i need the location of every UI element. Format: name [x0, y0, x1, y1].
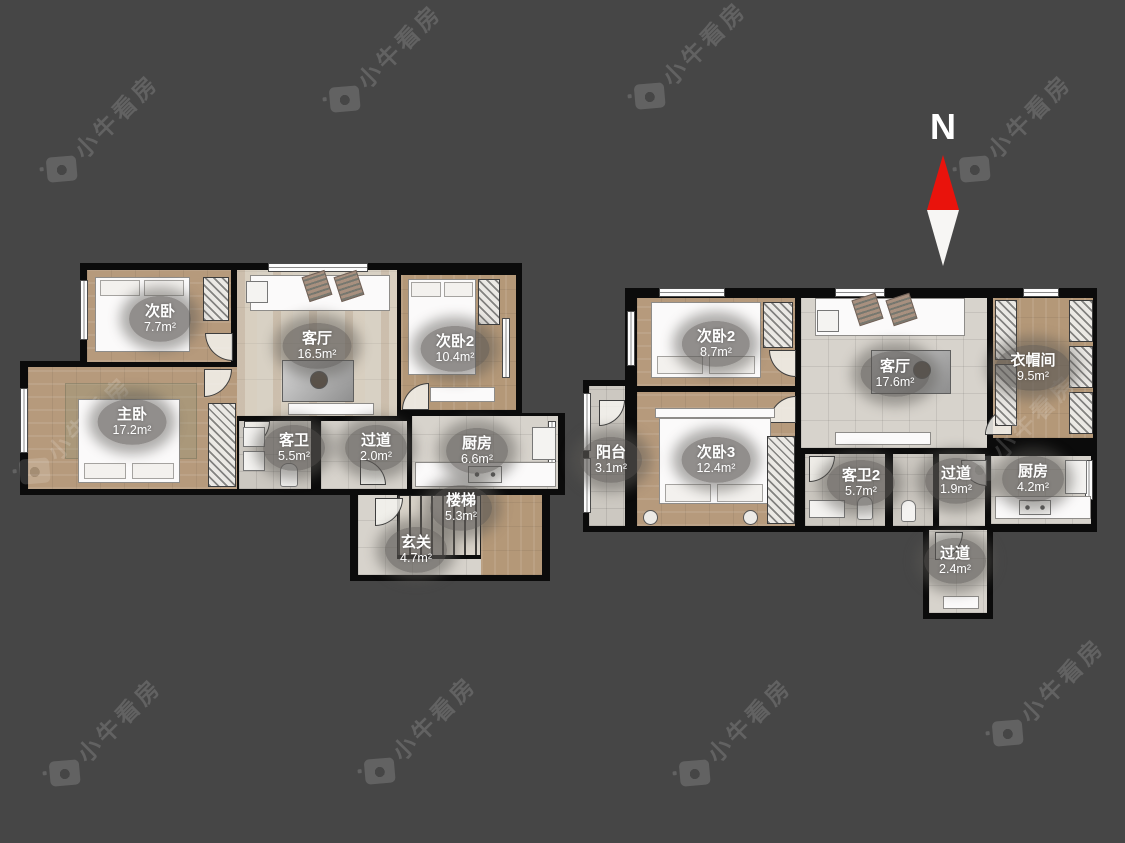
- toilet: [901, 500, 916, 522]
- fridge: [1065, 460, 1087, 494]
- window: [502, 318, 510, 378]
- plant-box: [817, 310, 839, 332]
- camera-icon: [328, 85, 360, 113]
- pillow: [144, 280, 184, 296]
- bath-divider-wall: [885, 454, 893, 526]
- camera-icon: [48, 759, 80, 787]
- tv-console: [835, 432, 931, 445]
- watermark: 小牛看房: [627, 0, 754, 118]
- window: [659, 288, 725, 297]
- window: [80, 280, 88, 340]
- sink: [243, 427, 265, 447]
- tv-console: [288, 403, 374, 415]
- north-arrow-white: [927, 210, 959, 266]
- toilet: [280, 463, 298, 487]
- window: [583, 393, 591, 451]
- shower: [857, 496, 873, 520]
- wardrobe: [763, 302, 793, 348]
- north-label: N: [930, 106, 956, 148]
- watermark-text: 小牛看房: [653, 0, 753, 92]
- watermark: 小牛看房: [985, 629, 1112, 756]
- fridge: [532, 427, 556, 460]
- watermark: 小牛看房: [39, 65, 166, 192]
- sink: [809, 500, 845, 518]
- pillow: [665, 484, 711, 502]
- pillow: [84, 463, 126, 479]
- north-arrow-red: [927, 155, 959, 210]
- pillow: [411, 282, 441, 297]
- watermark-text: 小牛看房: [348, 0, 448, 95]
- stove: [1019, 500, 1051, 515]
- room-entry-wood-floor: [481, 495, 542, 575]
- pillow: [709, 356, 755, 374]
- watermark-text: 小牛看房: [698, 669, 798, 769]
- watermark: 小牛看房: [672, 669, 799, 796]
- watermark: 小牛看房: [357, 667, 484, 794]
- watermark: 小牛看房: [42, 669, 169, 796]
- pillow: [132, 463, 174, 479]
- wardrobe: [1069, 346, 1093, 388]
- stove: [468, 466, 502, 483]
- stair-rail: [397, 555, 481, 559]
- window: [20, 388, 28, 453]
- stairs: [397, 495, 481, 557]
- plant-box: [246, 281, 268, 303]
- camera-icon: [633, 82, 665, 110]
- pillow: [657, 356, 703, 374]
- floorplan-right: 次卧2 8.7m² 客厅 17.6m² 衣帽间 9.5m² 阳台 3.1m² 次…: [583, 288, 1118, 628]
- wardrobe: [478, 279, 500, 325]
- wardrobe: [767, 436, 795, 524]
- wardrobe: [203, 277, 229, 321]
- coffee-table: [871, 350, 951, 394]
- wardrobe: [995, 364, 1017, 426]
- table-plant: [913, 361, 931, 379]
- floorplan-image: 小牛看房小牛看房小牛看房小牛看房小牛看房小牛看房小牛看房小牛看房小牛看房小牛看房: [0, 0, 1125, 843]
- pillow: [717, 484, 763, 502]
- table-plant: [310, 371, 328, 389]
- camera-icon: [363, 757, 395, 785]
- camera-icon: [678, 759, 710, 787]
- window: [583, 458, 591, 513]
- fan-symbol: [743, 510, 758, 525]
- pillow: [100, 280, 140, 296]
- bench: [430, 387, 495, 402]
- sink: [243, 451, 265, 471]
- watermark-text: 小牛看房: [978, 65, 1078, 165]
- fan-symbol: [643, 510, 658, 525]
- watermark: 小牛看房: [322, 0, 449, 121]
- door-mat: [943, 596, 979, 609]
- wardrobe: [995, 300, 1017, 360]
- watermark-text: 小牛看房: [1011, 629, 1111, 729]
- wardrobe: [208, 403, 236, 487]
- watermark-text: 小牛看房: [65, 65, 165, 165]
- wardrobe: [1069, 392, 1093, 434]
- camera-icon: [991, 719, 1023, 747]
- wardrobe: [1069, 300, 1093, 342]
- pillow: [444, 282, 473, 297]
- window: [627, 311, 635, 366]
- watermark-text: 小牛看房: [383, 667, 483, 767]
- north-indicator: N: [913, 106, 973, 276]
- bed-headboard: [655, 408, 775, 418]
- watermark-text: 小牛看房: [68, 669, 168, 769]
- camera-icon: [45, 155, 77, 183]
- window: [1023, 288, 1059, 297]
- window: [835, 288, 885, 297]
- floorplan-left: 次卧 7.7m² 客厅 16.5m² 次卧2 10.4m² 主卧 17.2m² …: [20, 263, 568, 583]
